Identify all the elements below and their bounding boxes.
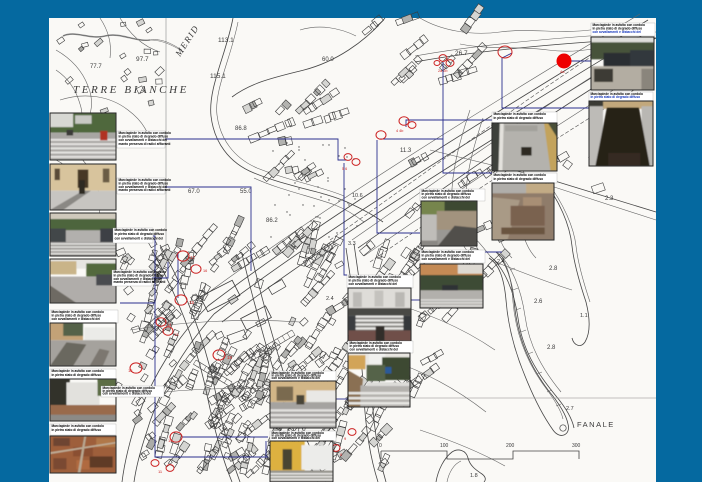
svg-text:10.6: 10.6 bbox=[352, 193, 363, 199]
svg-text:67.0: 67.0 bbox=[188, 189, 200, 195]
svg-text:2.3: 2.3 bbox=[605, 196, 614, 202]
svg-text:in pietra stato di degrado dif: in pietra stato di degrado diffuso bbox=[494, 177, 544, 181]
svg-text:manto presenza di radici affio: manto presenza di radici affioranti bbox=[119, 142, 171, 146]
svg-text:2.8: 2.8 bbox=[547, 345, 556, 351]
svg-text:con avvallamenti e distacchi d: con avvallamenti e distacchi del bbox=[422, 257, 471, 261]
svg-text:con avvallamenti e distacchi d: con avvallamenti e distacchi del bbox=[350, 347, 399, 351]
svg-text:con avvallamenti e distacchi d: con avvallamenti e distacchi del bbox=[272, 436, 321, 440]
svg-text:60.0: 60.0 bbox=[322, 57, 334, 63]
svg-text:1.1: 1.1 bbox=[580, 313, 588, 319]
svg-text:200: 200 bbox=[506, 443, 515, 449]
svg-text:10: 10 bbox=[168, 438, 173, 443]
svg-text:100: 100 bbox=[440, 443, 449, 449]
svg-text:2.7: 2.7 bbox=[566, 406, 574, 412]
svg-text:con avvallamenti e distacchi d: con avvallamenti e distacchi del bbox=[422, 195, 471, 199]
svg-text:in pietra stato di degrado dif: in pietra stato di degrado diffuso bbox=[52, 373, 102, 377]
svg-text:2.8: 2.8 bbox=[549, 266, 558, 272]
svg-text:con avvallamenti e distacchi d: con avvallamenti e distacchi del bbox=[52, 317, 101, 321]
svg-text:13: 13 bbox=[174, 332, 179, 337]
svg-text:2a 2b: 2a 2b bbox=[438, 69, 448, 73]
svg-text:1.8: 1.8 bbox=[470, 473, 478, 479]
svg-text:26.7: 26.7 bbox=[455, 50, 468, 57]
svg-text:con avvallamenti e distacchi d: con avvallamenti e distacchi del bbox=[115, 236, 164, 240]
svg-text:TERRE BIANCHE: TERRE BIANCHE bbox=[73, 84, 189, 96]
svg-text:4 4b: 4 4b bbox=[396, 129, 403, 133]
svg-text:4a: 4a bbox=[560, 69, 565, 74]
svg-text:0: 0 bbox=[379, 443, 382, 449]
svg-text:55.0: 55.0 bbox=[240, 189, 252, 195]
svg-text:5 6: 5 6 bbox=[342, 167, 347, 171]
svg-text:115.1: 115.1 bbox=[210, 73, 226, 80]
svg-text:15: 15 bbox=[189, 300, 195, 305]
svg-text:in pietra stato di degrado dif: in pietra stato di degrado diffuso bbox=[591, 95, 641, 99]
svg-text:2.4: 2.4 bbox=[497, 259, 505, 265]
svg-text:in pietra stato di degrado dif: in pietra stato di degrado diffuso bbox=[494, 116, 544, 120]
svg-text:FANALE: FANALE bbox=[577, 420, 615, 429]
svg-text:11.3: 11.3 bbox=[400, 148, 412, 154]
svg-text:12: 12 bbox=[128, 368, 133, 373]
svg-text:17: 17 bbox=[190, 255, 196, 260]
svg-text:2.6: 2.6 bbox=[534, 299, 543, 305]
svg-text:con avvallamenti e distacchi d: con avvallamenti e distacchi del bbox=[593, 30, 642, 34]
svg-text:86.2: 86.2 bbox=[266, 218, 278, 224]
svg-text:con avvallamenti e distacchi d: con avvallamenti e distacchi del bbox=[349, 282, 398, 286]
svg-text:3.3: 3.3 bbox=[348, 241, 356, 247]
svg-text:2.4: 2.4 bbox=[326, 296, 334, 302]
svg-text:manto presenza di radici affio: manto presenza di radici affioranti bbox=[114, 280, 166, 284]
svg-text:16: 16 bbox=[203, 269, 207, 273]
svg-text:manto presenza di radici affio: manto presenza di radici affioranti bbox=[119, 188, 171, 192]
svg-text:113.1: 113.1 bbox=[218, 37, 234, 44]
svg-text:97.7: 97.7 bbox=[136, 56, 149, 63]
svg-text:86.8: 86.8 bbox=[235, 126, 247, 132]
svg-text:300: 300 bbox=[572, 443, 581, 449]
svg-text:77.7: 77.7 bbox=[90, 64, 102, 70]
svg-text:14: 14 bbox=[167, 322, 172, 327]
svg-text:con avvallamenti e distacchi d: con avvallamenti e distacchi del bbox=[272, 376, 321, 380]
svg-text:18: 18 bbox=[227, 355, 233, 360]
svg-text:in pietra stato di degrado dif: in pietra stato di degrado diffuso bbox=[52, 428, 102, 432]
svg-text:con avvallamenti e distacchi d: con avvallamenti e distacchi del bbox=[103, 392, 152, 396]
